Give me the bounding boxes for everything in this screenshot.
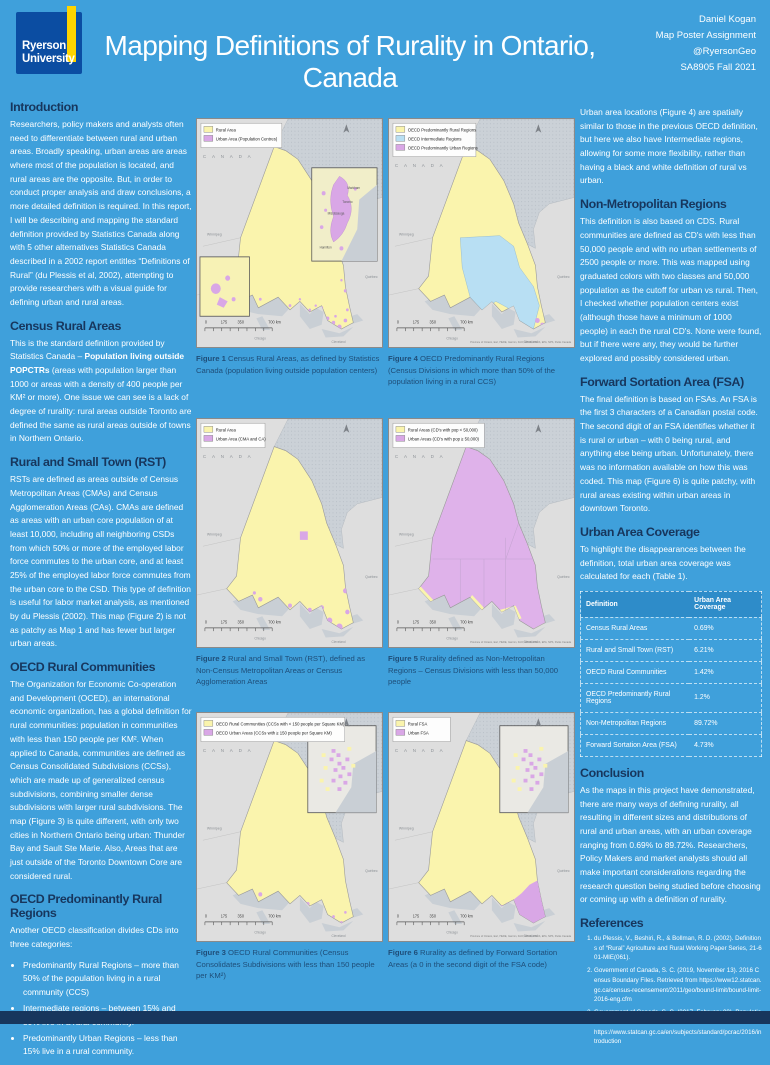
table-row: Census Rural Areas0.69% <box>581 617 762 639</box>
map-caption: Figure 1 Census Rural Areas, as defined … <box>196 353 380 376</box>
city-label-quebec: Québec <box>557 869 570 873</box>
inset-map <box>500 726 568 813</box>
section-conclusion: ConclusionAs the maps in this project ha… <box>580 766 762 907</box>
canada-label: C A N A D A <box>395 748 445 753</box>
reference-list: du Plessis, V., Beshiri, R., & Bollman, … <box>580 934 762 1047</box>
section-oecd-predominantly-rural-regions: OECD Predominantly Rural RegionsAnother … <box>10 892 192 1058</box>
svg-text:700 km: 700 km <box>268 914 281 919</box>
city-label-cleveland: Cleveland <box>332 934 346 938</box>
canada-label: C A N A D A <box>395 454 445 459</box>
svg-text:175: 175 <box>413 620 420 625</box>
city-label-cleveland: Cleveland <box>332 340 346 344</box>
map-figure-6: C A N A D AWinnipegQuébecChicagoClevelan… <box>388 712 575 942</box>
map-caption: Figure 5 Rurality defined as Non-Metropo… <box>388 653 572 688</box>
table-cell: Forward Sortation Area (FSA) <box>581 734 690 756</box>
map-figure-4: C A N A D AWinnipegQuébecChicagoClevelan… <box>388 118 575 348</box>
city-label-chicago: Chicago <box>254 930 266 934</box>
svg-text:350: 350 <box>430 320 437 325</box>
city-label-quebec: Québec <box>557 575 570 579</box>
svg-text:Urban FSA: Urban FSA <box>408 730 429 735</box>
section-oecd-rural-communities: OECD Rural CommunitiesThe Organization f… <box>10 660 192 883</box>
svg-text:700 km: 700 km <box>460 620 473 625</box>
svg-text:350: 350 <box>238 914 245 919</box>
svg-text:Toronto: Toronto <box>342 200 352 204</box>
map-legend: OECD Predominantly Rural RegionsOECD Int… <box>393 123 479 156</box>
city-label-winnipeg: Winnipeg <box>399 827 414 831</box>
map-figure-3: C A N A D AWinnipegQuébecChicagoClevelan… <box>196 712 383 942</box>
svg-text:700 km: 700 km <box>268 620 281 625</box>
svg-text:700 km: 700 km <box>460 320 473 325</box>
bullet-list: Predominantly Rural Regions – more than … <box>10 959 192 1059</box>
section-heading: Census Rural Areas <box>10 319 192 333</box>
svg-text:Rural Area: Rural Area <box>216 427 237 432</box>
svg-text:Markham: Markham <box>347 186 360 190</box>
map-caption: Figure 3 OECD Rural Communities (Census … <box>196 947 380 982</box>
paragraph: As the maps in this project have demonst… <box>580 784 762 907</box>
svg-text:Rural Area: Rural Area <box>216 127 237 132</box>
paragraph: Another OECD classification divides CDs … <box>10 924 192 951</box>
table-cell: 1.42% <box>689 661 761 683</box>
section-introduction: IntroductionResearchers, policy makers a… <box>10 100 192 310</box>
bullet-item: Predominantly Urban Regions – less than … <box>23 1032 192 1059</box>
map-attribution: Province of Ontario, Esri, HERE, Garmin,… <box>470 340 571 344</box>
map-cell-figure-2: C A N A D AWinnipegQuébecChicagoClevelan… <box>196 418 383 688</box>
svg-text:Mississauga: Mississauga <box>328 211 345 215</box>
svg-text:350: 350 <box>430 914 437 919</box>
poster-credits: Daniel Kogan Map Poster Assignment @Ryer… <box>656 12 756 77</box>
logo-line2: University <box>22 53 75 65</box>
svg-text:Urban Areas (CD's with pop ≥ 5: Urban Areas (CD's with pop ≥ 50,000) <box>408 436 480 441</box>
column-header: Definition <box>581 591 690 617</box>
table-cell: OECD Predominantly Rural Regions <box>581 683 690 712</box>
svg-text:700 km: 700 km <box>268 320 281 325</box>
bullet-item: Predominantly Rural Regions – more than … <box>23 959 192 999</box>
map-caption: Figure 2 Rural and Small Town (RST), def… <box>196 653 380 688</box>
table-row: OECD Rural Communities1.42% <box>581 661 762 683</box>
table-row: Forward Sortation Area (FSA)4.73% <box>581 734 762 756</box>
city-label-winnipeg: Winnipeg <box>207 533 222 537</box>
map-legend: Rural AreaUrban Area (Population Centres… <box>201 123 282 147</box>
city-label-winnipeg: Winnipeg <box>207 233 222 237</box>
table-header-row: DefinitionUrban Area Coverage <box>581 591 762 617</box>
section-heading: Conclusion <box>580 766 762 780</box>
map-cell-figure-6: C A N A D AWinnipegQuébecChicagoClevelan… <box>388 712 575 970</box>
svg-text:Rural Areas (CD's with pop < 5: Rural Areas (CD's with pop < 50,000) <box>408 427 478 432</box>
section-heading: OECD Rural Communities <box>10 660 192 674</box>
section-paragraph: Urban area locations (Figure 4) are spat… <box>580 106 762 188</box>
reference-item: Government of Canada, S. C. (2019, Novem… <box>594 966 762 1004</box>
table-cell: 4.73% <box>689 734 761 756</box>
section-heading: OECD Predominantly Rural Regions <box>10 892 192 920</box>
svg-text:OECD Rural Communities (CCSs w: OECD Rural Communities (CCSs with < 150 … <box>216 721 345 726</box>
section-heading: References <box>580 916 762 930</box>
logo-line1: Ryerson <box>22 40 75 52</box>
section-heading: Forward Sortation Area (FSA) <box>580 375 762 389</box>
table-row: Non-Metropolitan Regions89.72% <box>581 712 762 734</box>
section-references: Referencesdu Plessis, V., Beshiri, R., &… <box>580 916 762 1047</box>
map-cell-figure-1: C A N A D AWinnipegQuébecChicagoClevelan… <box>196 118 383 376</box>
svg-text:350: 350 <box>430 620 437 625</box>
city-label-chicago: Chicago <box>254 636 266 640</box>
table-cell: 89.72% <box>689 712 761 734</box>
table-cell: Rural and Small Town (RST) <box>581 639 690 661</box>
table-row: Rural and Small Town (RST)6.21% <box>581 639 762 661</box>
inset-map: MarkhamTorontoMississaugaHamilton <box>312 168 377 261</box>
credit-course: SA8905 Fall 2021 <box>656 60 756 76</box>
map-figure-5: C A N A D AWinnipegQuébecChicagoClevelan… <box>388 418 575 648</box>
city-label-cleveland: Cleveland <box>332 640 346 644</box>
svg-text:Urban Area (Population Centres: Urban Area (Population Centres) <box>216 136 278 141</box>
map-cell-figure-5: C A N A D AWinnipegQuébecChicagoClevelan… <box>388 418 575 688</box>
map-figure-1: C A N A D AWinnipegQuébecChicagoClevelan… <box>196 118 383 348</box>
svg-text:175: 175 <box>221 620 228 625</box>
svg-text:OECD Predominantly Rural Regio: OECD Predominantly Rural Regions <box>408 127 477 132</box>
city-label-winnipeg: Winnipeg <box>399 533 414 537</box>
paragraph: This is the standard definition provided… <box>10 337 192 447</box>
section-heading: Urban Area Coverage <box>580 525 762 539</box>
city-label-chicago: Chicago <box>446 930 458 934</box>
section-rural-and-small-town-rst: Rural and Small Town (RST)RSTs are defin… <box>10 455 192 651</box>
paragraph: RSTs are defined as areas outside of Cen… <box>10 473 192 651</box>
paragraph: The Organization for Economic Co-operati… <box>10 678 192 883</box>
map-cell-figure-3: C A N A D AWinnipegQuébecChicagoClevelan… <box>196 712 383 982</box>
column-header: Urban Area Coverage <box>689 591 761 617</box>
coverage-table: DefinitionUrban Area CoverageCensus Rura… <box>580 591 762 757</box>
inset-map <box>200 257 249 316</box>
paragraph: Urban area locations (Figure 4) are spat… <box>580 106 762 188</box>
svg-text:350: 350 <box>238 320 245 325</box>
city-label-winnipeg: Winnipeg <box>399 233 414 237</box>
table-cell: Non-Metropolitan Regions <box>581 712 690 734</box>
paragraph: To highlight the disappearances between … <box>580 543 762 584</box>
logo-text: Ryerson University <box>22 40 75 65</box>
credit-handle: @RyersonGeo <box>656 44 756 60</box>
section-heading: Introduction <box>10 100 192 114</box>
table-cell: Census Rural Areas <box>581 617 690 639</box>
map-cell-figure-4: C A N A D AWinnipegQuébecChicagoClevelan… <box>388 118 575 388</box>
map-attribution: Province of Ontario, Esri, HERE, Garmin,… <box>470 934 571 938</box>
city-label-winnipeg: Winnipeg <box>207 827 222 831</box>
map-legend: OECD Rural Communities (CCSs with < 150 … <box>201 717 345 741</box>
table-cell: 0.69% <box>689 617 761 639</box>
section-census-rural-areas: Census Rural AreasThis is the standard d… <box>10 319 192 447</box>
canada-label: C A N A D A <box>203 748 253 753</box>
map-legend: Rural AreaUrban Area (CMA and CA) <box>201 423 266 447</box>
map-attribution: Province of Ontario, Esri, HERE, Garmin,… <box>470 640 571 644</box>
city-label-chicago: Chicago <box>254 336 266 340</box>
svg-text:175: 175 <box>221 320 228 325</box>
paragraph: This definition is also based on CDS. Ru… <box>580 215 762 366</box>
table-row: OECD Predominantly Rural Regions1.2% <box>581 683 762 712</box>
table-cell: 6.21% <box>689 639 761 661</box>
left-column: IntroductionResearchers, policy makers a… <box>10 100 192 1065</box>
poster: Ryerson University Mapping Definitions o… <box>0 0 770 1024</box>
credit-author: Daniel Kogan <box>656 12 756 28</box>
city-label-chicago: Chicago <box>446 636 458 640</box>
map-legend: Rural FSAUrban FSA <box>393 717 450 741</box>
city-label-quebec: Québec <box>365 869 378 873</box>
section-forward-sortation-area-fsa: Forward Sortation Area (FSA)The final de… <box>580 375 762 516</box>
map-legend: Rural Areas (CD's with pop < 50,000)Urba… <box>393 423 484 447</box>
map-caption: Figure 4 OECD Predominantly Rural Region… <box>388 353 572 388</box>
svg-text:175: 175 <box>413 320 420 325</box>
svg-text:350: 350 <box>238 620 245 625</box>
section-non-metropolitan-regions: Non-Metropolitan RegionsThis definition … <box>580 197 762 366</box>
svg-text:OECD Predominantly Urban Regio: OECD Predominantly Urban Regions <box>408 145 479 150</box>
city-label-quebec: Québec <box>365 275 378 279</box>
section-urban-area-coverage: Urban Area CoverageTo highlight the disa… <box>580 525 762 757</box>
svg-text:175: 175 <box>413 914 420 919</box>
poster-title: Mapping Definitions of Rurality in Ontar… <box>100 30 600 94</box>
paragraph: Researchers, policy makers and analysts … <box>10 118 192 310</box>
svg-text:Hamilton: Hamilton <box>320 245 332 249</box>
ryerson-logo: Ryerson University <box>16 12 82 74</box>
svg-text:Rural FSA: Rural FSA <box>408 721 428 726</box>
canada-label: C A N A D A <box>395 163 445 168</box>
table-cell: OECD Rural Communities <box>581 661 690 683</box>
right-column: Urban area locations (Figure 4) are spat… <box>580 106 762 1050</box>
credit-assignment: Map Poster Assignment <box>656 28 756 44</box>
canada-label: C A N A D A <box>203 154 253 159</box>
map-caption: Figure 6 Rurality as defined by Forward … <box>388 947 572 970</box>
paragraph: The final definition is based on FSAs. A… <box>580 393 762 516</box>
svg-text:700 km: 700 km <box>460 914 473 919</box>
footer-bar <box>0 1011 770 1024</box>
map-figure-2: C A N A D AWinnipegQuébecChicagoClevelan… <box>196 418 383 648</box>
section-heading: Non-Metropolitan Regions <box>580 197 762 211</box>
section-heading: Rural and Small Town (RST) <box>10 455 192 469</box>
city-label-quebec: Québec <box>557 275 570 279</box>
table-cell: 1.2% <box>689 683 761 712</box>
svg-text:OECD Intermediate Regions: OECD Intermediate Regions <box>408 136 462 141</box>
reference-item: du Plessis, V., Beshiri, R., & Bollman, … <box>594 934 762 963</box>
canada-label: C A N A D A <box>203 454 253 459</box>
svg-text:175: 175 <box>221 914 228 919</box>
svg-text:Urban Area (CMA and CA): Urban Area (CMA and CA) <box>216 436 266 441</box>
svg-text:OECD Urban Areas (CCSs with ≥: OECD Urban Areas (CCSs with ≥ 150 people… <box>216 730 333 735</box>
city-label-chicago: Chicago <box>446 336 458 340</box>
city-label-quebec: Québec <box>365 575 378 579</box>
